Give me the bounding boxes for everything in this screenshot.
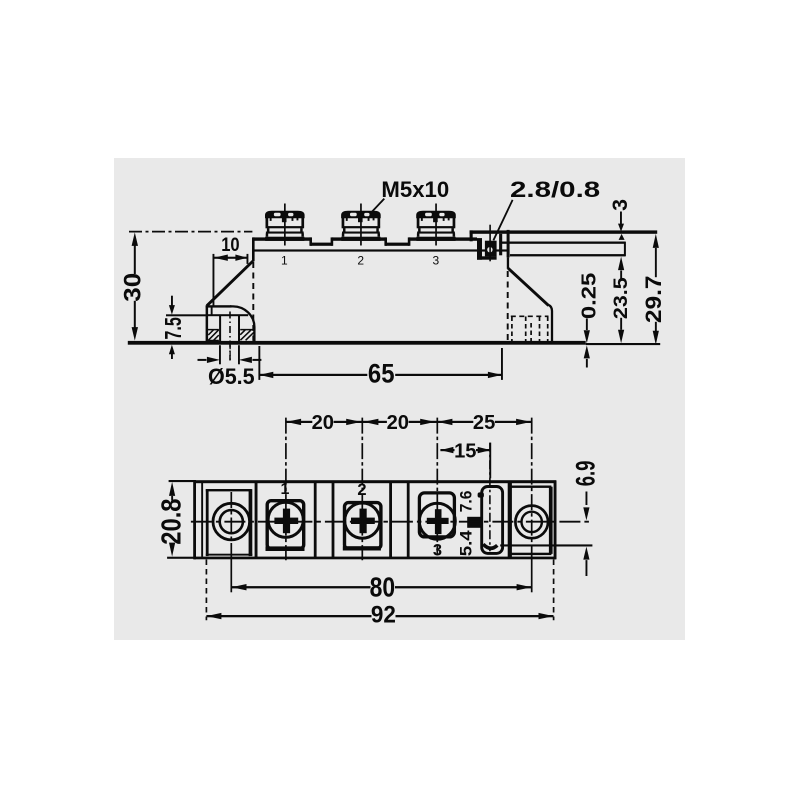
svg-text:1: 1 — [281, 254, 288, 268]
svg-text:65: 65 — [368, 358, 395, 388]
svg-text:7.5: 7.5 — [160, 317, 186, 340]
svg-text:25: 25 — [473, 411, 495, 434]
svg-text:20: 20 — [387, 411, 409, 434]
svg-text:20: 20 — [312, 411, 334, 434]
svg-text:6.9: 6.9 — [571, 461, 601, 487]
svg-text:15: 15 — [454, 439, 476, 462]
svg-text:92: 92 — [371, 602, 396, 629]
svg-text:Ø5.5: Ø5.5 — [208, 364, 255, 389]
svg-text:0.25: 0.25 — [579, 273, 601, 319]
svg-text:10: 10 — [221, 234, 240, 256]
svg-text:30: 30 — [120, 273, 147, 302]
svg-text:1: 1 — [280, 481, 289, 498]
svg-text:20.8: 20.8 — [155, 498, 186, 544]
svg-text:23.5: 23.5 — [611, 277, 632, 319]
svg-text:3: 3 — [608, 199, 632, 211]
svg-text:7.6: 7.6 — [456, 491, 475, 513]
svg-text:29.7: 29.7 — [641, 275, 666, 323]
svg-text:2.8/0.8: 2.8/0.8 — [510, 177, 600, 202]
svg-text:2: 2 — [357, 254, 364, 268]
svg-text:5.4: 5.4 — [456, 530, 475, 557]
svg-text:M5x10: M5x10 — [381, 177, 449, 202]
svg-text:80: 80 — [370, 572, 396, 603]
svg-text:3: 3 — [432, 254, 439, 268]
